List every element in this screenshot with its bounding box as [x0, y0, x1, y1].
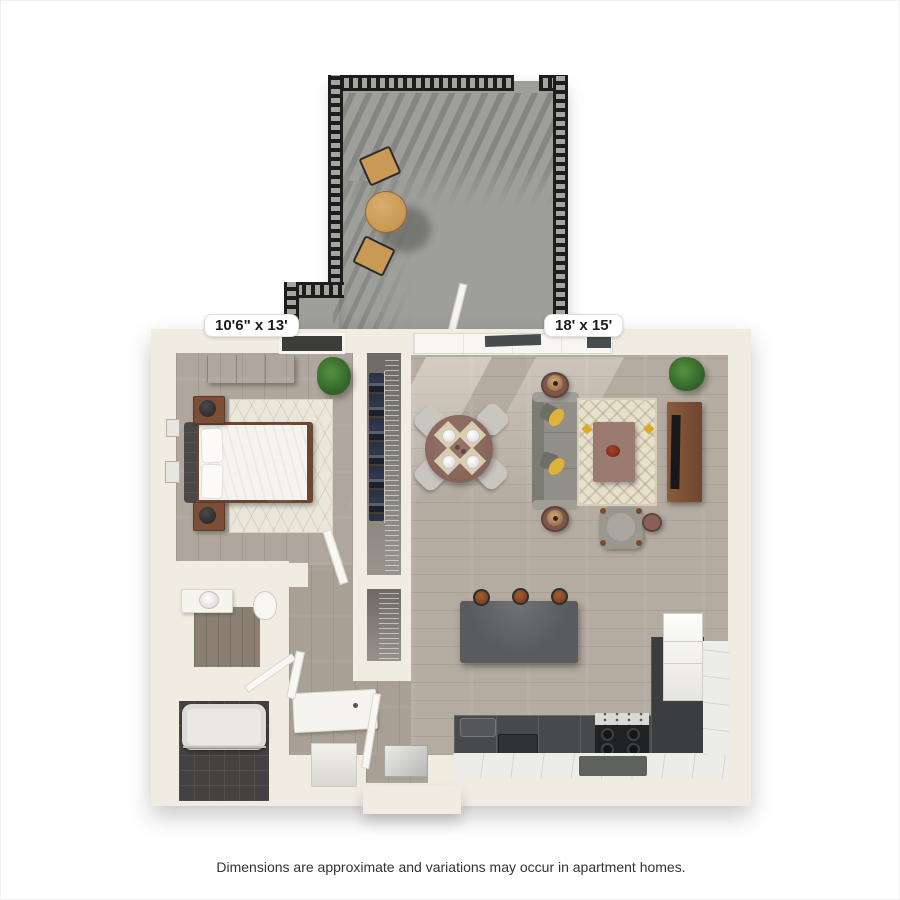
tv — [670, 415, 680, 489]
fridge-seam — [664, 663, 702, 664]
plate — [466, 429, 480, 443]
chair-arm — [600, 508, 606, 514]
centerpiece — [606, 445, 620, 457]
chair-leg — [600, 540, 606, 546]
stove-control-panel — [595, 713, 649, 725]
shower-rod — [183, 746, 266, 748]
bedroom-dimension-label: 10'6" x 13' — [204, 314, 299, 337]
kitchen-tile-strip — [703, 641, 729, 755]
lamp-finial — [553, 381, 558, 386]
patio-door-glass — [485, 334, 541, 347]
plate — [442, 429, 456, 443]
chair-arm — [636, 508, 642, 514]
closet-hanging-clothes — [369, 373, 384, 521]
wall-closet-divider — [361, 575, 407, 589]
chair-leg — [636, 540, 642, 546]
living-dimension-label: 18' x 15' — [544, 314, 623, 337]
bed-blanket — [267, 424, 293, 502]
disclaimer-text: Dimensions are approximate and variation… — [1, 859, 900, 875]
headboard — [184, 422, 197, 503]
bed-pillow — [200, 464, 223, 500]
table-candle — [455, 445, 460, 450]
closet-rod — [384, 371, 385, 523]
water-closet-floor — [194, 607, 260, 667]
wall-art — [166, 419, 180, 437]
hall-cabinet — [311, 743, 357, 787]
table-candle — [461, 449, 466, 454]
chair-side-table — [642, 513, 662, 532]
bar-stool — [512, 588, 529, 605]
bar-stool — [473, 589, 490, 606]
potted-plant — [669, 357, 705, 391]
kitchen-island — [460, 601, 578, 663]
balcony-railing-left — [328, 75, 343, 287]
wall-closet-bottom — [353, 661, 411, 681]
lamp-finial — [553, 516, 558, 521]
plate — [466, 455, 480, 469]
linen-closet-shelves — [379, 593, 399, 659]
wall-closet-living — [401, 353, 411, 666]
closet-wire-shelves — [385, 357, 399, 571]
balcony-railing-right — [553, 75, 568, 337]
balcony-railing-top — [331, 75, 514, 91]
burner — [601, 728, 614, 741]
wall-art — [165, 461, 180, 483]
kitchen-sink — [460, 718, 496, 737]
living-dimension-text: 18' x 15' — [555, 317, 612, 334]
bathtub — [182, 704, 266, 750]
floorplan-canvas: 10'6" x 13' 18' x 15' Dimensions are app… — [0, 0, 900, 900]
bedside-lamp — [199, 400, 216, 417]
plate — [442, 455, 456, 469]
burner — [627, 728, 640, 741]
wall-closet-left — [353, 579, 367, 667]
wall-bedroom-closet — [353, 353, 367, 579]
bed-pillow — [200, 428, 223, 464]
entry-alcove-wall — [363, 786, 461, 814]
bedroom-dimension-text: 10'6" x 13' — [215, 317, 288, 334]
bathroom-sink-basin — [199, 591, 219, 609]
fridge-seam — [664, 641, 702, 642]
toilet — [253, 591, 277, 620]
hall-vanity-counter — [292, 689, 378, 733]
potted-plant — [317, 357, 351, 395]
dresser — [207, 355, 295, 383]
entry-doormat — [384, 745, 428, 777]
bedside-lamp — [199, 507, 216, 524]
bar-stool — [551, 588, 568, 605]
vanity-faucet — [353, 703, 358, 708]
accent-chair-seat — [607, 513, 635, 541]
oven-front — [579, 756, 647, 776]
patio-table — [365, 191, 407, 233]
refrigerator — [663, 613, 703, 701]
